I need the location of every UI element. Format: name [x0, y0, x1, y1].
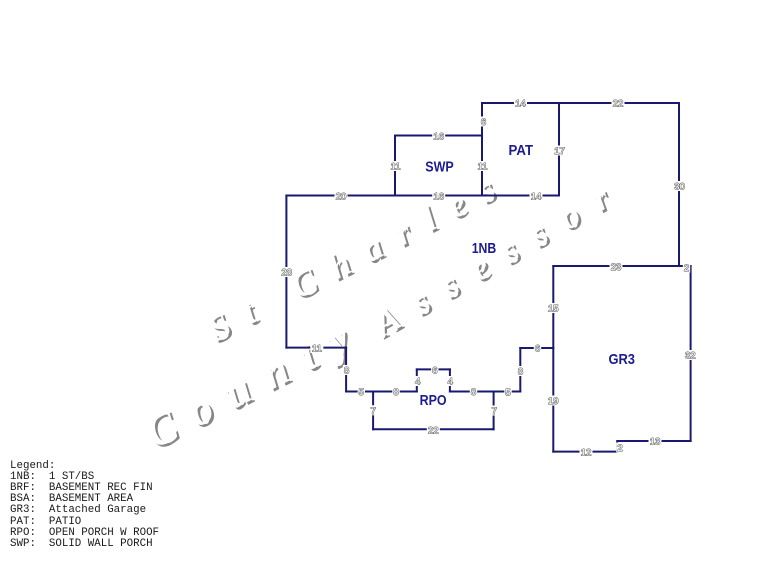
svg-text:2: 2 [684, 263, 689, 274]
svg-text:6: 6 [481, 117, 486, 128]
svg-text:11: 11 [478, 162, 488, 173]
svg-text:22: 22 [613, 99, 624, 110]
svg-text:22: 22 [428, 426, 439, 437]
svg-text:4: 4 [415, 377, 420, 388]
svg-text:23: 23 [611, 262, 622, 273]
svg-text:15: 15 [548, 304, 559, 315]
svg-text:14: 14 [515, 99, 526, 110]
svg-text:20: 20 [336, 192, 347, 203]
svg-text:30: 30 [674, 182, 685, 193]
svg-text:7: 7 [492, 406, 497, 417]
svg-text:SWP: SWP [425, 158, 454, 175]
svg-text:13: 13 [650, 437, 661, 448]
svg-text:28: 28 [281, 268, 292, 279]
svg-text:8: 8 [393, 387, 398, 398]
svg-text:5: 5 [359, 387, 364, 398]
svg-text:8: 8 [471, 387, 476, 398]
svg-text:32: 32 [685, 351, 696, 362]
svg-text:PAT: PAT [509, 142, 534, 159]
svg-text:16: 16 [433, 192, 444, 203]
svg-text:17: 17 [554, 146, 565, 157]
svg-text:RPO: RPO [420, 392, 447, 409]
svg-text:6: 6 [535, 344, 540, 355]
svg-text:2: 2 [617, 443, 622, 454]
svg-text:5: 5 [505, 388, 510, 399]
svg-text:11: 11 [312, 344, 322, 355]
svg-text:8: 8 [518, 367, 523, 378]
svg-text:11: 11 [391, 162, 401, 173]
svg-text:GR3: GR3 [608, 351, 635, 368]
svg-text:8: 8 [344, 366, 349, 377]
svg-text:19: 19 [548, 396, 559, 407]
svg-text:6: 6 [432, 366, 437, 377]
svg-text:4: 4 [448, 377, 453, 388]
svg-text:1NB: 1NB [472, 240, 497, 257]
svg-text:7: 7 [371, 406, 376, 417]
svg-text:12: 12 [581, 448, 592, 459]
svg-text:16: 16 [433, 132, 444, 143]
svg-text:14: 14 [531, 192, 542, 203]
